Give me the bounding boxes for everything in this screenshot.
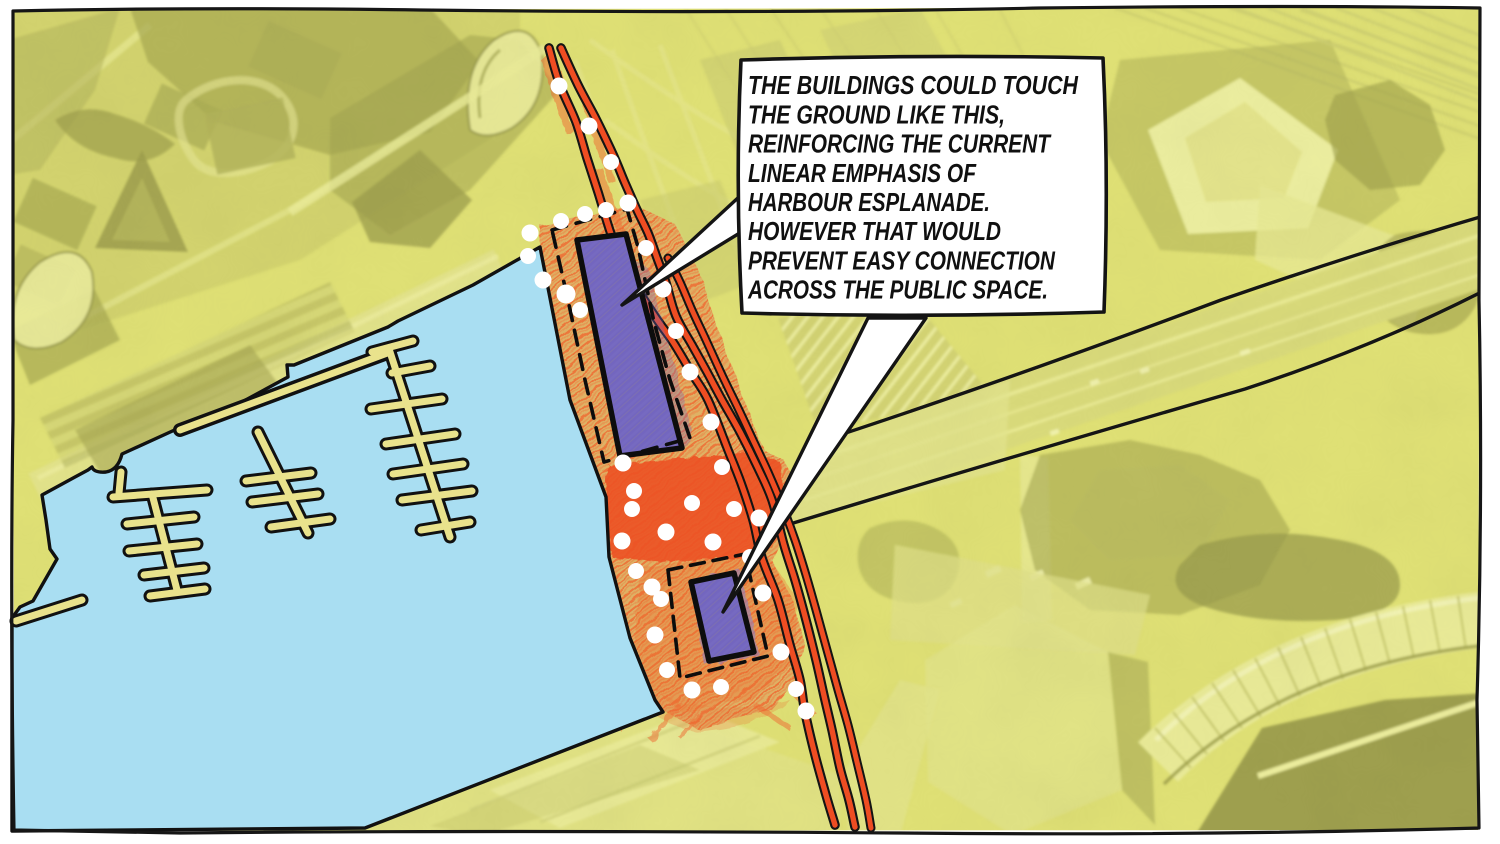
svg-text:LINEAR EMPHASIS OF: LINEAR EMPHASIS OF (748, 160, 977, 188)
svg-text:HOWEVER THAT WOULD: HOWEVER THAT WOULD (748, 218, 1001, 246)
svg-text:HARBOUR ESPLANADE.: HARBOUR ESPLANADE. (748, 189, 990, 217)
svg-text:REINFORCING THE CURRENT: REINFORCING THE CURRENT (748, 131, 1052, 159)
svg-text:PREVENT EASY CONNECTION: PREVENT EASY CONNECTION (748, 247, 1055, 275)
svg-text:THE GROUND LIKE THIS,: THE GROUND LIKE THIS, (748, 101, 1005, 129)
svg-text:ACROSS THE PUBLIC SPACE.: ACROSS THE PUBLIC SPACE. (747, 277, 1048, 305)
svg-text:THE BUILDINGS COULD TOUCH: THE BUILDINGS COULD TOUCH (748, 72, 1078, 100)
